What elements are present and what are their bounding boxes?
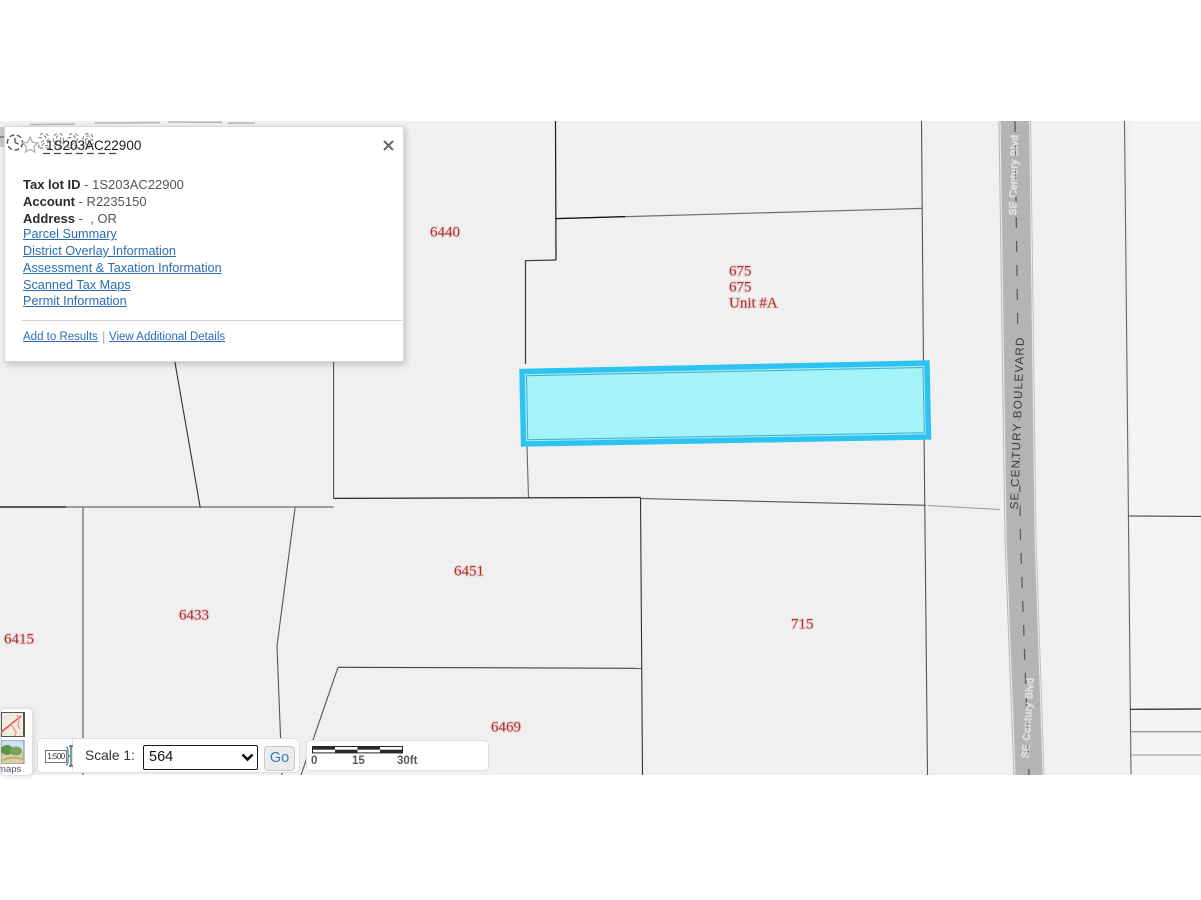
svg-text:Unit #A: Unit #A [729, 296, 778, 312]
svg-text:6433: 6433 [179, 608, 209, 624]
svg-text:675: 675 [729, 264, 752, 280]
svg-text:1S203AC22900: 1S203AC22900 [46, 138, 141, 153]
svg-text:675: 675 [729, 280, 752, 296]
svg-text:6451: 6451 [454, 564, 484, 580]
svg-text:6469: 6469 [491, 720, 521, 736]
svg-text:6415: 6415 [4, 632, 34, 648]
svg-text:715: 715 [791, 617, 814, 633]
svg-text:6440: 6440 [430, 225, 460, 241]
svg-text:SE Century Blvd: SE Century Blvd [1008, 134, 1021, 215]
